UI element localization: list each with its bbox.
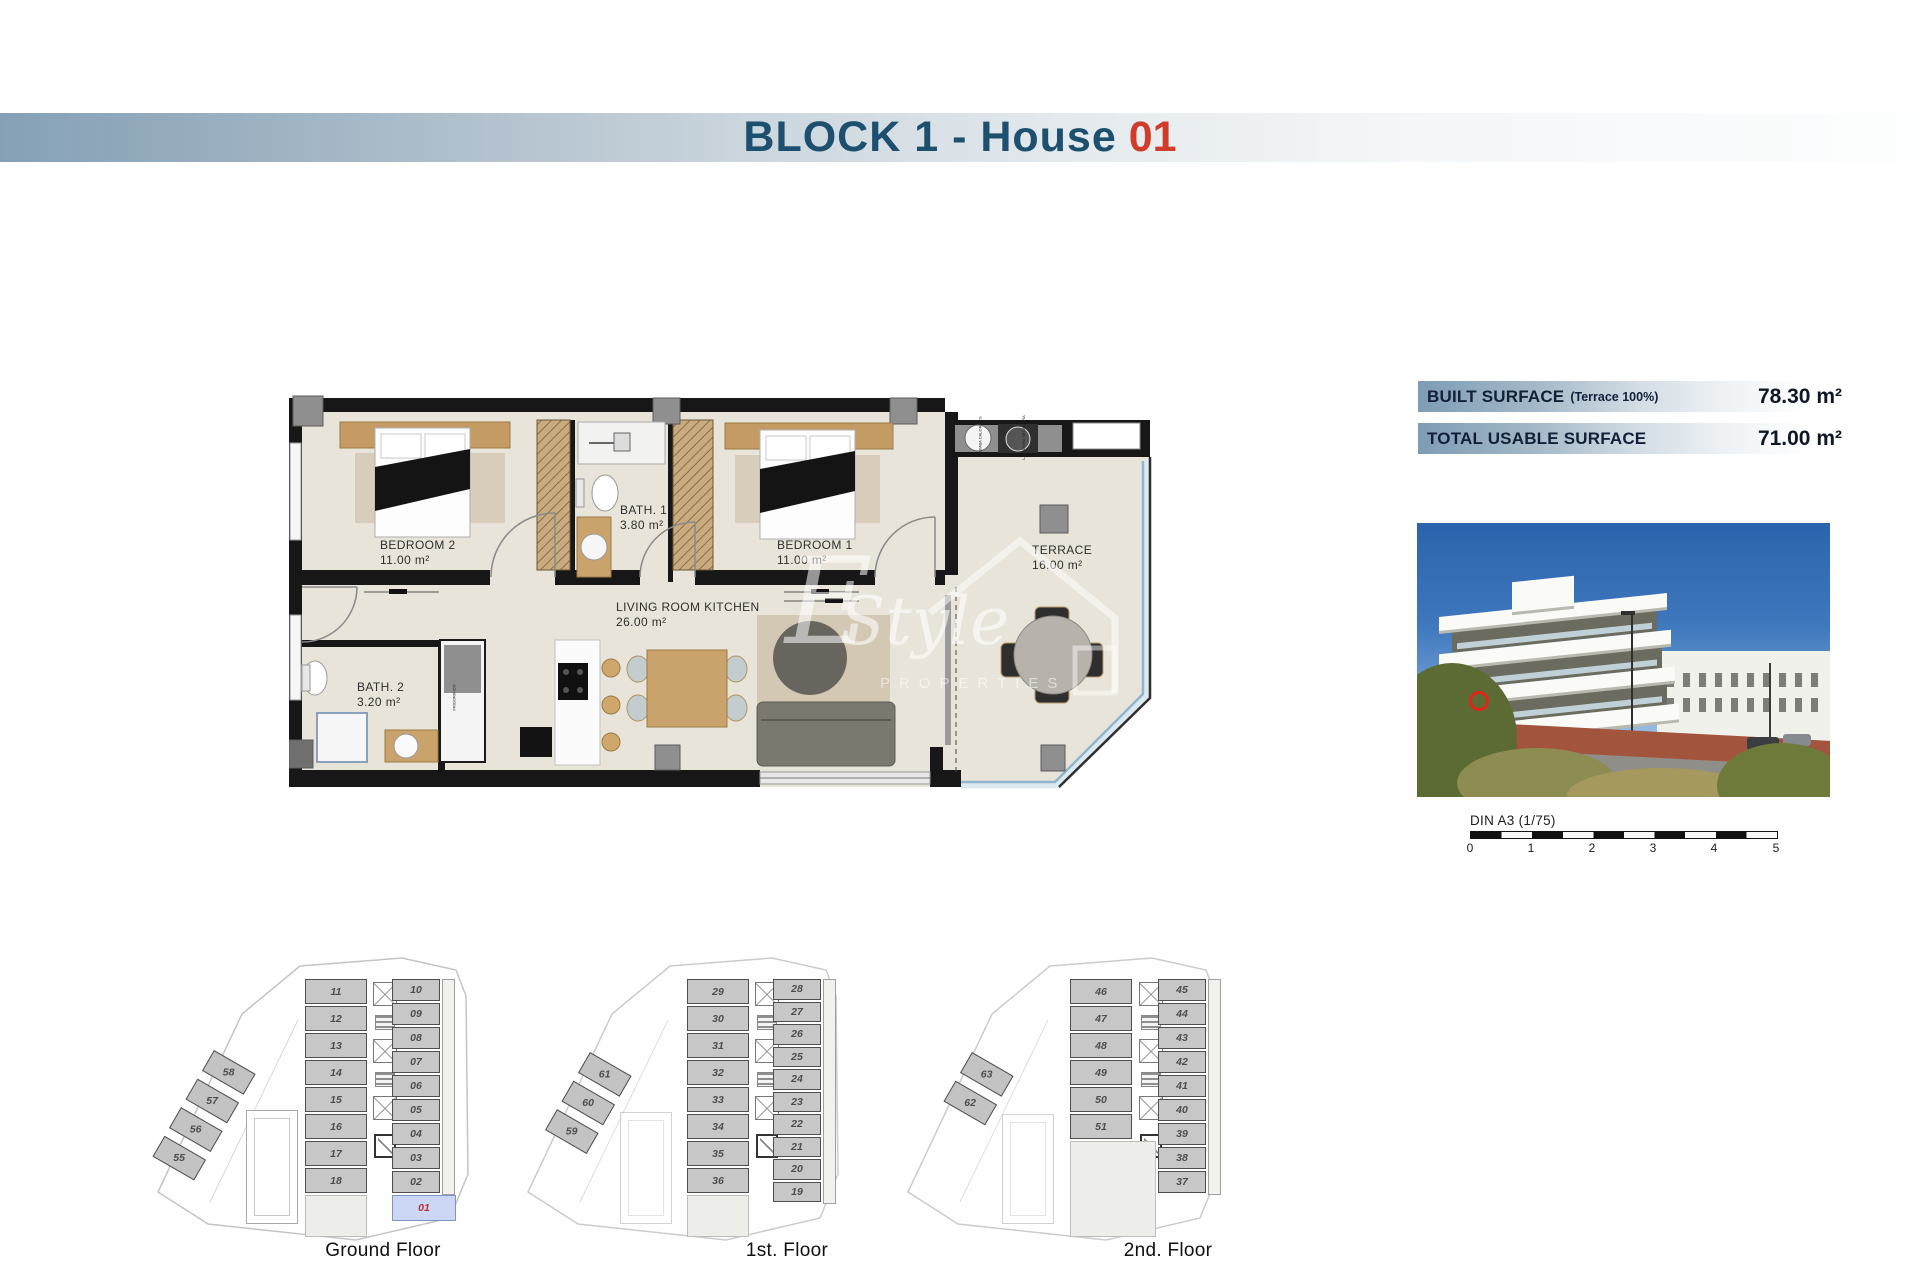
unit-cell: 33 [687, 1087, 749, 1112]
built-surface-note: (Terrace 100%) [1570, 390, 1658, 404]
unit-column-right: 45 44 43 42 41 40 39 38 37 [1158, 979, 1206, 1195]
terrace-strip [442, 979, 455, 1195]
unit-cell: 44 [1158, 1003, 1206, 1025]
shower-bath2 [317, 713, 367, 762]
toilet-bath1 [592, 475, 618, 511]
building-photo [1417, 523, 1830, 797]
scale-tick: 3 [1650, 841, 1657, 855]
ground-floor-caption: Ground Floor [263, 1240, 503, 1262]
room-area-bedroom2: 11.00 m² [380, 553, 456, 568]
built-surface-row: BUILT SURFACE (Terrace 100%) 78.30 m² [1418, 381, 1844, 412]
first-floor-caption: 1st. Floor [667, 1240, 907, 1262]
unit-cell: 45 [1158, 979, 1206, 1001]
room-label-bath2: BATH. 2 3.20 m² [357, 680, 404, 710]
washer-dryer-label: LAVADORA SECADORA [1021, 415, 1026, 460]
terrace-strip [1208, 979, 1221, 1195]
fridge-label: FRIGORIFICO [452, 684, 457, 710]
scale-tick: 2 [1589, 841, 1596, 855]
terrace-strip [823, 979, 836, 1204]
unit-cell: 14 [305, 1060, 367, 1085]
unit-cell: 41 [1158, 1075, 1206, 1097]
unit-cell: 26 [773, 1024, 821, 1045]
unit-cell: 10 [392, 979, 440, 1001]
unit-cell: 19 [773, 1182, 821, 1203]
utility-niche [955, 423, 1140, 453]
unit-column-left: 46 47 48 49 50 51 [1070, 979, 1132, 1141]
unit-cell: 35 [687, 1141, 749, 1166]
heat-pump-label: BOMBA CALOR ACS [978, 416, 983, 454]
unit-column-right: 28 27 26 25 24 23 22 21 20 19 [773, 979, 821, 1204]
room-label-terrace: TERRACE 16.00 m² [1032, 543, 1092, 573]
unit-cell: 43 [1158, 1027, 1206, 1049]
unit-cell-highlighted: 01 [392, 1195, 456, 1221]
unit-cell: 24 [773, 1069, 821, 1090]
bedroom1-furniture [725, 423, 893, 539]
unit-cell: 20 [773, 1159, 821, 1180]
built-surface-value: 78.30 m² [1758, 385, 1844, 409]
room-area-terrace: 16.00 m² [1032, 558, 1092, 573]
unit-cell: 34 [687, 1114, 749, 1139]
unit-cell: 38 [1158, 1147, 1206, 1169]
unit-cell: 05 [392, 1099, 440, 1121]
room-area-bath1: 3.80 m² [620, 518, 667, 533]
unit-column-left: 29 30 31 32 33 34 35 36 [687, 979, 749, 1195]
unit-cell: 08 [392, 1027, 440, 1049]
tv-unit [520, 727, 552, 757]
unit-cell: 32 [687, 1060, 749, 1085]
unit-cell: 29 [687, 979, 749, 1004]
second-floor-caption: 2nd. Floor [1048, 1240, 1288, 1262]
usable-surface-value: 71.00 m² [1758, 427, 1844, 451]
scale-tick: 5 [1773, 841, 1780, 855]
unit-cell: 49 [1070, 1060, 1132, 1085]
unit-cell: 07 [392, 1051, 440, 1073]
roof-area [1070, 1141, 1156, 1237]
unit-cell: 31 [687, 1033, 749, 1058]
dining-table [647, 650, 727, 727]
unit-cell: 23 [773, 1092, 821, 1113]
keyplan-first-floor: 61 60 59 29 30 31 32 33 34 35 36 28 27 2… [520, 952, 900, 1252]
terrace-table [1014, 616, 1092, 694]
unit-cell: 36 [687, 1168, 749, 1193]
stool [602, 733, 620, 751]
unit-cell: 37 [1158, 1171, 1206, 1193]
stool [602, 696, 620, 714]
unit-cell: 22 [773, 1114, 821, 1135]
scale-tick: 1 [1528, 841, 1535, 855]
unit-cell: 39 [1158, 1123, 1206, 1145]
unit-cell: 51 [1070, 1114, 1132, 1139]
unit-cell: 42 [1158, 1051, 1206, 1073]
kitchen-island [555, 640, 600, 765]
unit-cell: 48 [1070, 1033, 1132, 1058]
unit-cell: 02 [392, 1171, 440, 1193]
room-label-bedroom1: BEDROOM 1 11.00 m² [777, 538, 853, 568]
page-title: BLOCK 1 - House [743, 113, 1116, 162]
hob [558, 663, 588, 700]
unit-cell: 18 [305, 1168, 367, 1193]
unit-cell: 28 [773, 979, 821, 1000]
courtyard [246, 1110, 298, 1224]
room-label-bedroom2: BEDROOM 2 11.00 m² [380, 538, 456, 568]
apartment-floor-plan: BEDROOM 2 11.00 m² BATH. 1 3.80 m² BEDRO… [289, 395, 1155, 795]
unit-cell: 27 [773, 1002, 821, 1023]
sliding-door [945, 595, 951, 745]
street-lamp [1769, 663, 1771, 748]
sofa [757, 702, 895, 766]
unit-cell: 40 [1158, 1099, 1206, 1121]
unit-cell: 25 [773, 1047, 821, 1068]
common-area [687, 1195, 749, 1237]
room-area-bath2: 3.20 m² [357, 695, 404, 710]
room-area-living: 26.00 m² [616, 615, 760, 630]
unit-cell: 30 [687, 1006, 749, 1031]
unit-cell: 47 [1070, 1006, 1132, 1031]
unit-cell: 03 [392, 1147, 440, 1169]
din-scale-label: DIN A3 (1/75) [1470, 813, 1556, 828]
usable-surface-label: TOTAL USABLE SURFACE [1418, 429, 1646, 449]
unit-cell: 11 [305, 979, 367, 1004]
common-area [305, 1195, 367, 1237]
keyplan-ground-floor: 58 57 56 55 11 12 13 14 15 16 17 18 10 0… [150, 952, 530, 1252]
keyplan-second-floor: 63 62 46 47 48 49 50 51 45 44 43 42 41 4… [900, 952, 1280, 1252]
title-banner: BLOCK 1 - House 01 [0, 113, 1920, 162]
built-surface-label: BUILT SURFACE [1418, 387, 1564, 407]
page-title-number: 01 [1129, 113, 1177, 162]
bedroom2-furniture [340, 422, 510, 537]
scale-bar [1470, 831, 1778, 839]
stool [602, 659, 620, 677]
usable-surface-row: TOTAL USABLE SURFACE 71.00 m² [1418, 423, 1844, 454]
unit-cell: 21 [773, 1137, 821, 1158]
unit-cell: 06 [392, 1075, 440, 1097]
courtyard [620, 1112, 672, 1224]
unit-location-marker [1469, 691, 1489, 711]
unit-cell: 16 [305, 1114, 367, 1139]
coffee-table [773, 621, 847, 695]
room-label-living: LIVING ROOM KITCHEN 26.00 m² [616, 600, 760, 630]
unit-cell: 50 [1070, 1087, 1132, 1112]
scale-tick: 4 [1711, 841, 1718, 855]
courtyard [1002, 1114, 1054, 1224]
unit-cell: 09 [392, 1003, 440, 1025]
unit-column-right: 10 09 08 07 06 05 04 03 02 01 [392, 979, 440, 1223]
unit-cell: 12 [305, 1006, 367, 1031]
unit-cell: 13 [305, 1033, 367, 1058]
scale-tick: 0 [1467, 841, 1474, 855]
unit-cell: 17 [305, 1141, 367, 1166]
unit-cell: 04 [392, 1123, 440, 1145]
room-label-bath1: BATH. 1 3.80 m² [620, 503, 667, 533]
unit-column-left: 11 12 13 14 15 16 17 18 [305, 979, 367, 1195]
unit-cell: 46 [1070, 979, 1132, 1004]
unit-cell: 15 [305, 1087, 367, 1112]
room-area-bedroom1: 11.00 m² [777, 553, 853, 568]
